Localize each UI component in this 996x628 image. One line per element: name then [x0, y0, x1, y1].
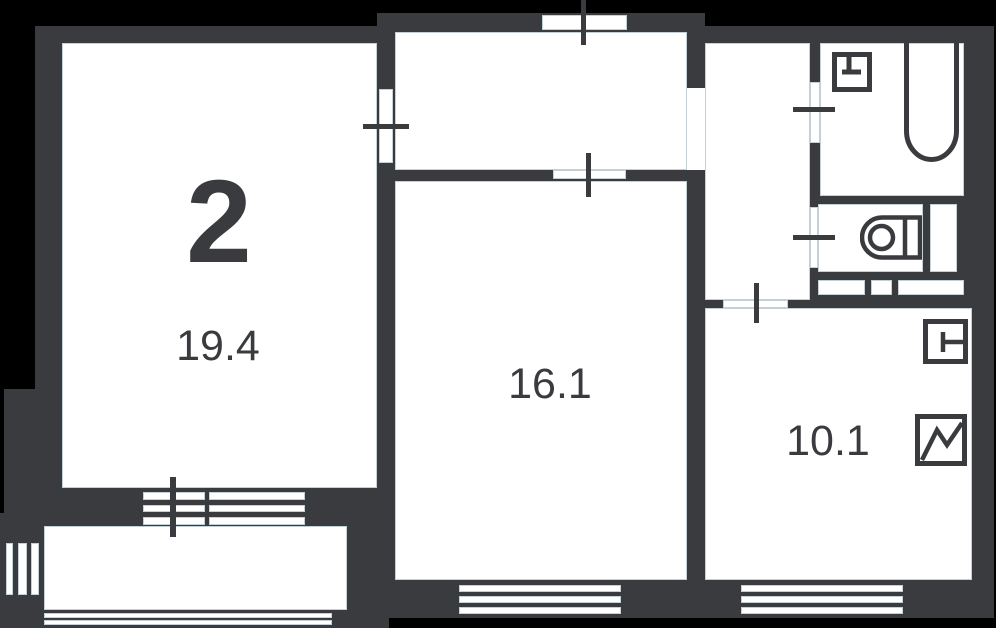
- bedroom-window-strip: [459, 607, 621, 614]
- entrance-door-tick: [581, 0, 586, 45]
- living-window-strip: [209, 505, 305, 512]
- living-door-tick: [363, 124, 409, 129]
- wc-door-tick: [793, 235, 835, 240]
- neighbor-divider-slat: [18, 543, 27, 595]
- living-window-strip: [209, 517, 305, 525]
- bathroom-door-opening: [810, 82, 820, 143]
- bedroom-window-strip: [459, 585, 621, 592]
- vent-box: [898, 280, 964, 295]
- toilet-icon: [860, 215, 922, 260]
- bedroom-window-strip: [459, 596, 621, 603]
- sink-icon: [832, 52, 872, 92]
- bathroom-door-tick: [793, 107, 835, 112]
- kitchen-door-tick: [754, 283, 759, 323]
- balcony-door-tick: [170, 477, 176, 537]
- neighbor-wall-stub: [4, 389, 43, 513]
- bathtub-icon: [904, 43, 959, 162]
- bedroom-door-tick: [586, 153, 591, 197]
- living-window-strip: [209, 492, 305, 500]
- balcony-railing-line: [44, 613, 332, 618]
- corridor: [395, 32, 687, 170]
- neighbor-divider-slat: [6, 543, 13, 595]
- duct-shaft: [930, 204, 957, 272]
- balcony-railing-line: [44, 620, 332, 625]
- kitchen-window-strip: [741, 596, 903, 603]
- kitchen-window-strip: [741, 607, 903, 614]
- appliance-icon: [923, 319, 968, 364]
- vent-box: [871, 280, 892, 295]
- living-area-label: 19.4: [118, 324, 318, 368]
- kitchen-area-label: 10.1: [728, 419, 928, 463]
- corridor-hall-opening: [687, 88, 705, 170]
- bedroom-area-label: 16.1: [450, 362, 650, 406]
- vent-box: [818, 280, 865, 295]
- floor-plan: 2 19.4 16.1 10.1: [0, 0, 996, 628]
- neighbor-divider-slat: [31, 543, 39, 595]
- kitchen-window-strip: [741, 585, 903, 592]
- rooms-count-label: 2: [69, 160, 369, 284]
- hallway: [705, 43, 810, 300]
- balcony-floor: [44, 526, 347, 610]
